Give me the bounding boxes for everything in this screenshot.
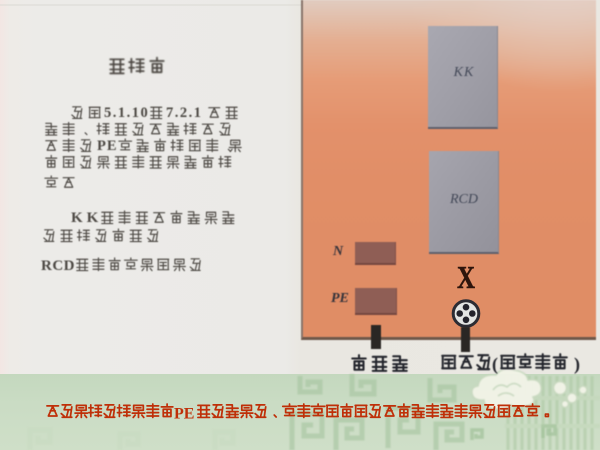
svg-text:): ) (574, 354, 580, 375)
svg-text:7.2.1: 7.2.1 (166, 105, 203, 121)
svg-text:PE: PE (97, 138, 118, 154)
svg-text:5.1.10: 5.1.10 (104, 105, 149, 121)
svg-text:KK: KK (71, 210, 102, 226)
svg-text:RCD: RCD (41, 258, 75, 274)
svg-text:(: ( (492, 354, 498, 375)
svg-text:PE: PE (174, 406, 194, 423)
